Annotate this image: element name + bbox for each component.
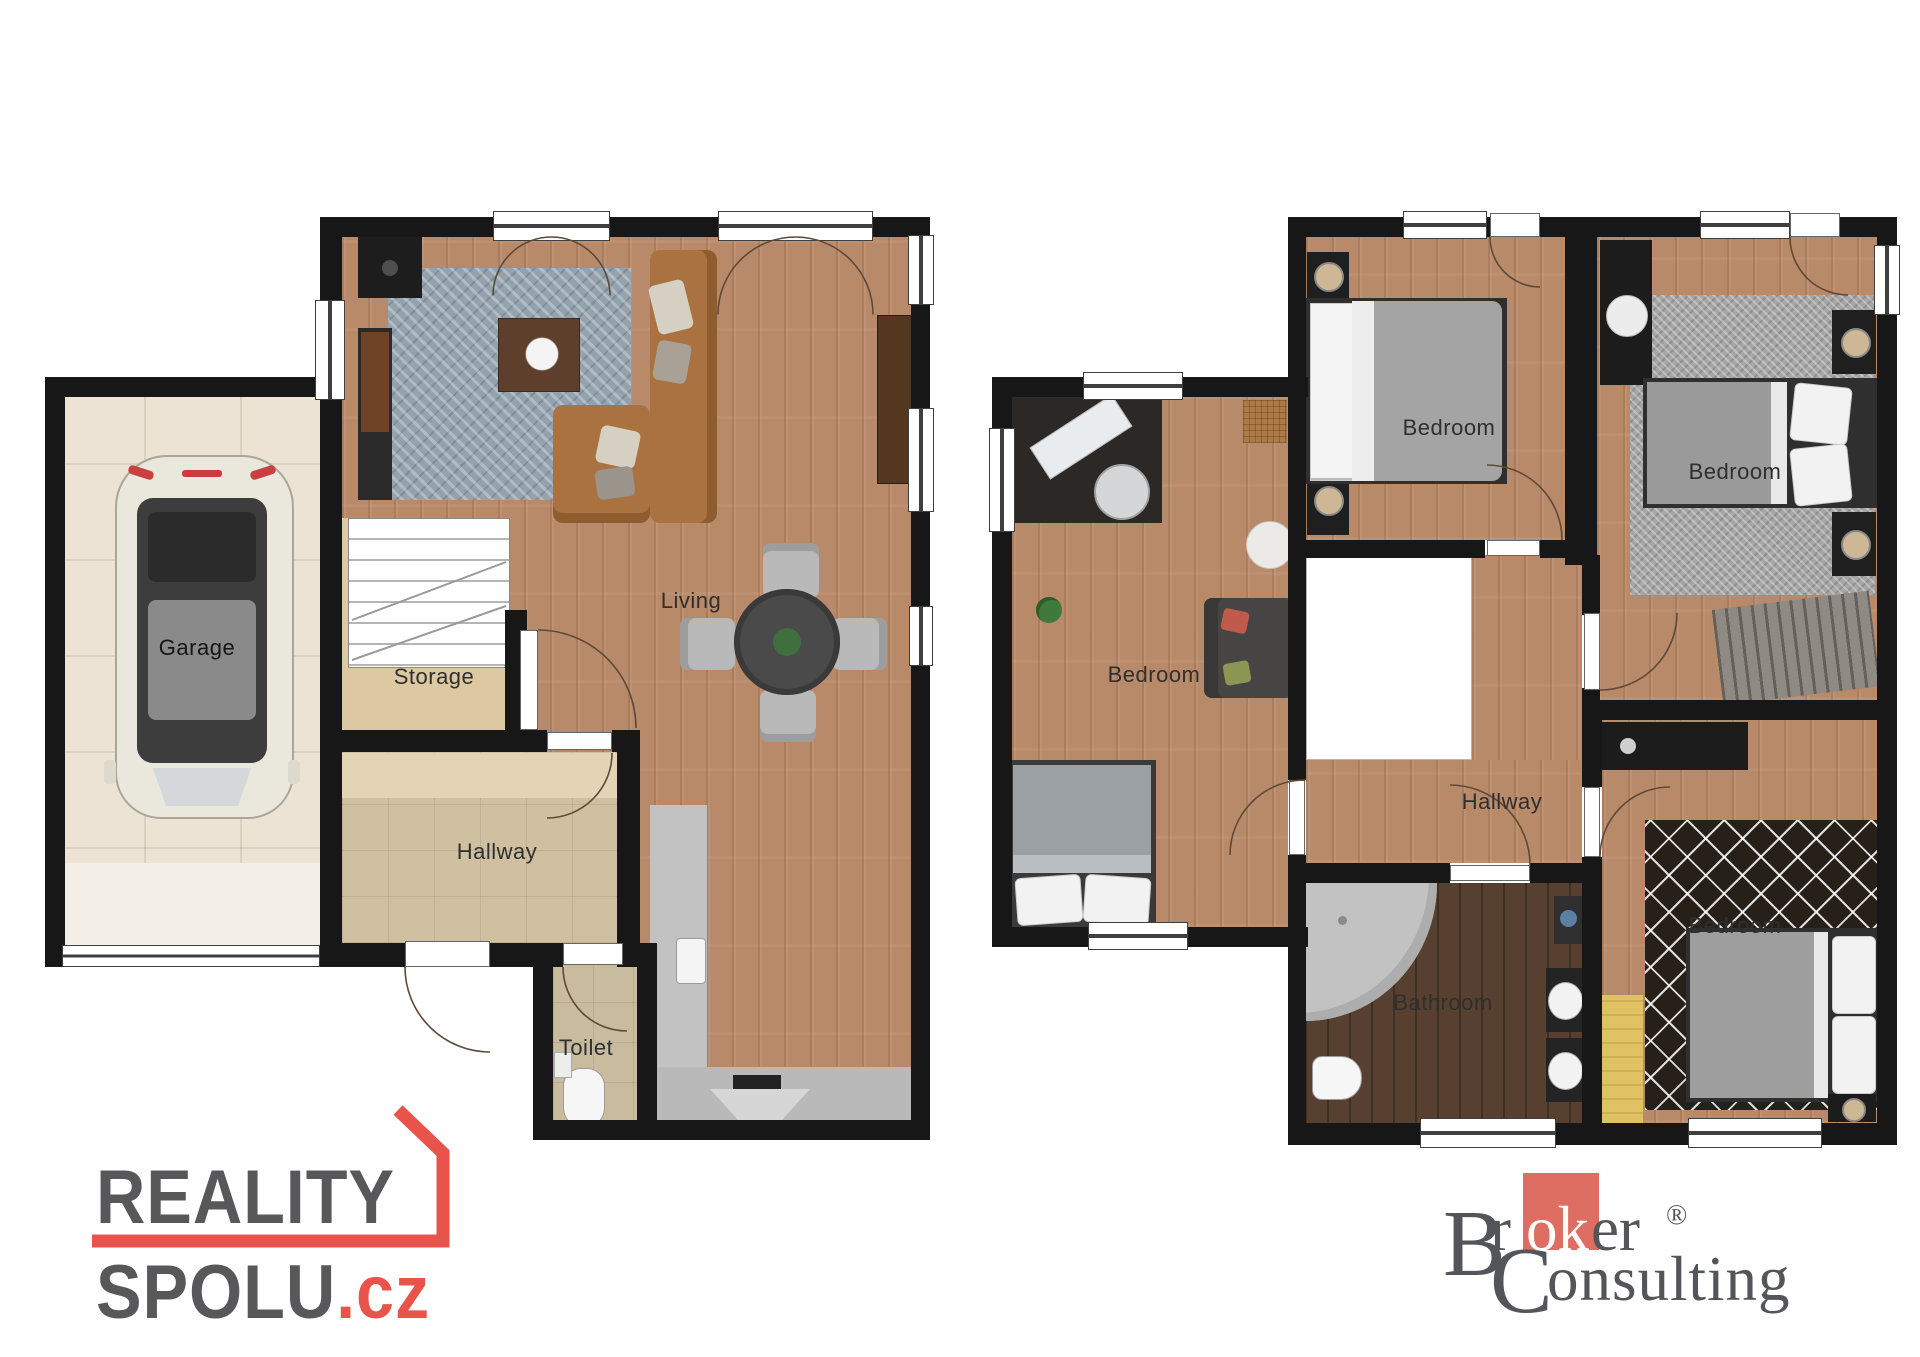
broker-rest2: onsulting — [1547, 1244, 1791, 1314]
broker-initial2: C — [1490, 1229, 1553, 1333]
broker-reg: ® — [1666, 1200, 1687, 1231]
broker-consulting-logo: B r ok er ® C onsulting — [1390, 1150, 1870, 1357]
floorplan-sheet: Garage Storage Living Hallway Toilet Bed… — [0, 0, 1920, 1357]
